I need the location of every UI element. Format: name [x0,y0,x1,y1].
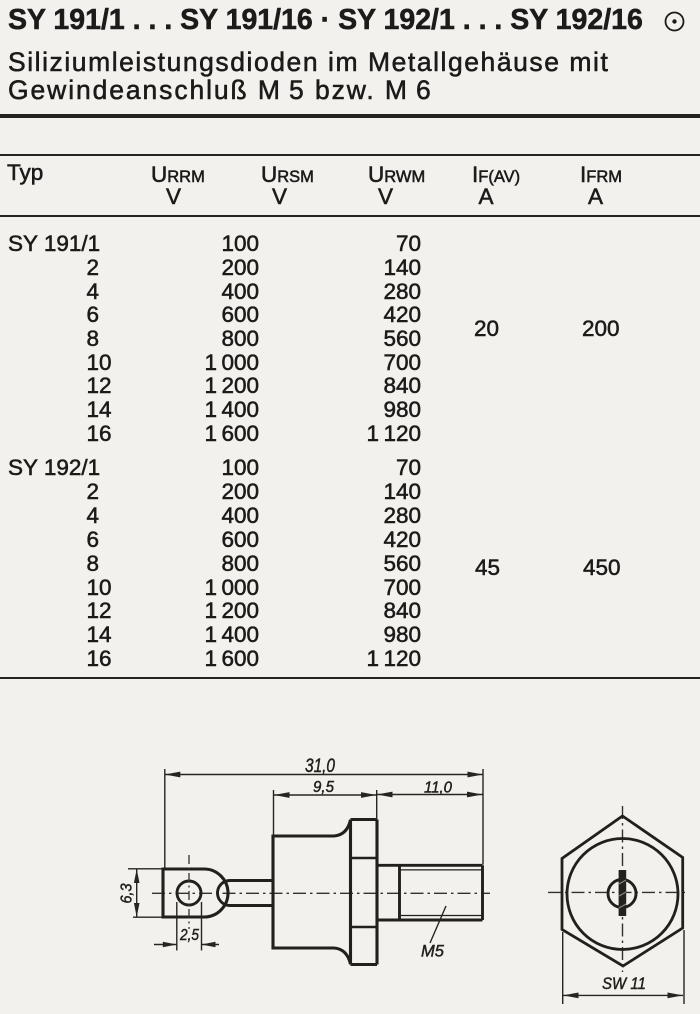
svg-text:31,0: 31,0 [305,755,335,777]
svg-text:6,3: 6,3 [119,883,136,903]
svg-text:11,0: 11,0 [424,780,452,797]
svg-text:9,5: 9,5 [313,779,334,796]
svg-text:2,5: 2,5 [179,927,199,944]
svg-text:M5: M5 [421,943,445,961]
svg-text:SW 11: SW 11 [602,975,646,993]
